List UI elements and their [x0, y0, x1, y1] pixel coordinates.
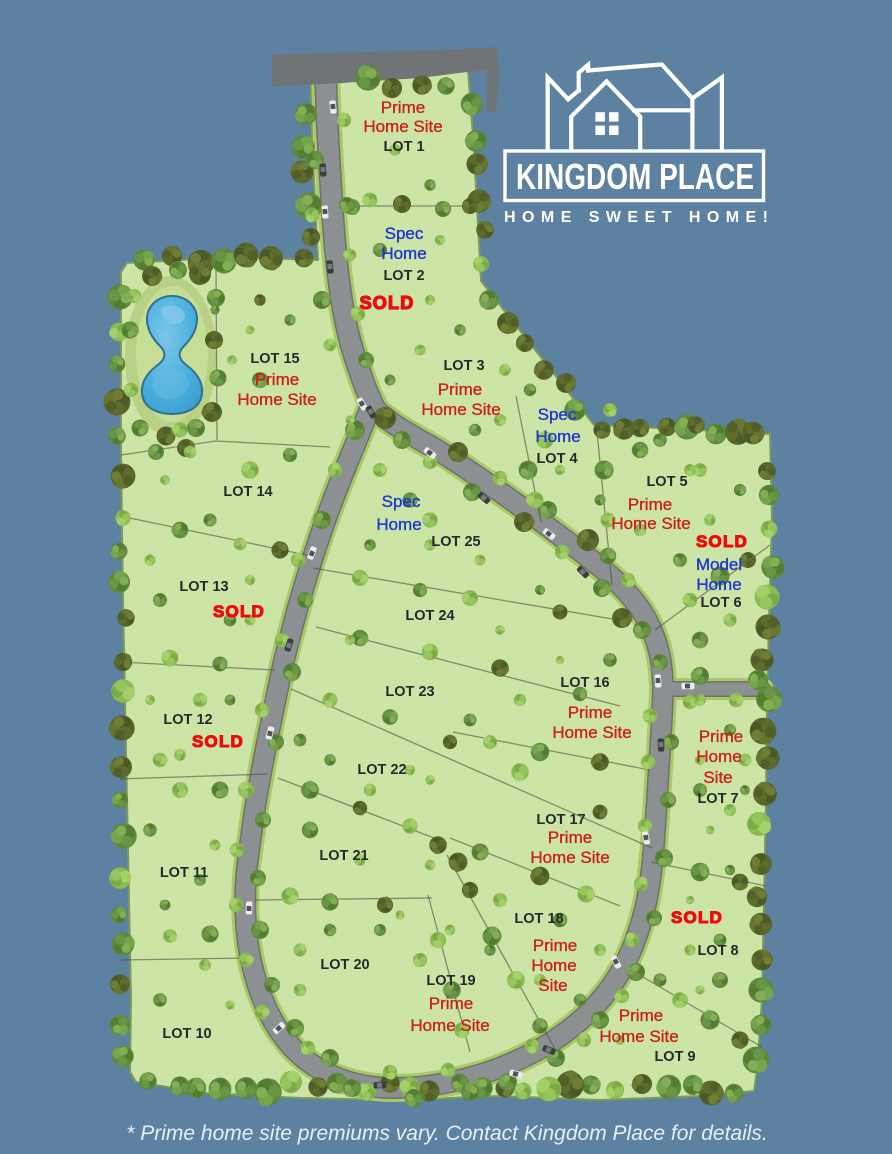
svg-text:Home Site: Home Site: [410, 1016, 489, 1035]
svg-text:Home Site: Home Site: [552, 723, 631, 742]
svg-text:LOT 15: LOT 15: [250, 351, 299, 367]
svg-text:LOT 12: LOT 12: [163, 712, 212, 728]
svg-text:LOT 22: LOT 22: [357, 762, 406, 778]
svg-text:SOLD: SOLD: [192, 732, 244, 751]
svg-text:LOT 11: LOT 11: [160, 865, 208, 881]
svg-text:Prime: Prime: [429, 994, 473, 1013]
svg-text:LOT 9: LOT 9: [654, 1049, 695, 1065]
svg-text:KINGDOM PLACE: KINGDOM PLACE: [516, 156, 754, 197]
svg-text:Prime: Prime: [255, 370, 299, 389]
svg-text:Prime: Prime: [548, 828, 592, 847]
svg-text:Home Site: Home Site: [530, 848, 609, 867]
svg-text:Site: Site: [538, 976, 567, 995]
svg-text:LOT 6: LOT 6: [700, 595, 741, 611]
svg-text:LOT 20: LOT 20: [320, 957, 369, 973]
svg-text:SOLD: SOLD: [696, 532, 748, 551]
svg-text:LOT 24: LOT 24: [405, 608, 454, 624]
svg-text:Home Site: Home Site: [237, 390, 316, 409]
svg-text:LOT 4: LOT 4: [536, 451, 577, 467]
svg-text:Home Site: Home Site: [421, 400, 500, 419]
svg-text:Prime: Prime: [619, 1006, 663, 1025]
svg-text:LOT 7: LOT 7: [697, 791, 738, 807]
svg-text:Prime: Prime: [381, 98, 425, 117]
svg-text:Site: Site: [703, 768, 732, 787]
svg-text:Prime: Prime: [568, 703, 612, 722]
svg-text:LOT 13: LOT 13: [179, 579, 228, 595]
svg-text:SOLD: SOLD: [671, 908, 723, 927]
svg-text:Home: Home: [696, 747, 741, 766]
svg-text:HOME SWEET HOME!: HOME SWEET HOME!: [504, 209, 768, 226]
svg-text:LOT 18: LOT 18: [514, 911, 563, 927]
svg-text:LOT 16: LOT 16: [560, 675, 609, 691]
svg-text:SOLD: SOLD: [213, 602, 265, 621]
svg-text:LOT 21: LOT 21: [319, 848, 368, 864]
svg-text:Home: Home: [381, 244, 426, 263]
svg-text:LOT 2: LOT 2: [383, 268, 424, 284]
svg-text:LOT 8: LOT 8: [697, 943, 738, 959]
svg-text:LOT 10: LOT 10: [162, 1026, 211, 1042]
svg-text:LOT 5: LOT 5: [646, 474, 687, 490]
svg-text:Home: Home: [696, 575, 741, 594]
svg-text:Prime: Prime: [628, 495, 672, 514]
svg-text:LOT 23: LOT 23: [385, 684, 434, 700]
svg-text:Home: Home: [531, 956, 576, 975]
svg-text:Home Site: Home Site: [611, 514, 690, 533]
svg-text:Spec: Spec: [538, 405, 577, 424]
svg-text:Home: Home: [535, 427, 580, 446]
svg-text:Home Site: Home Site: [363, 117, 442, 136]
svg-text:Spec: Spec: [385, 224, 424, 243]
svg-text:Prime: Prime: [699, 727, 743, 746]
svg-text:LOT 19: LOT 19: [426, 973, 475, 989]
svg-text:LOT 25: LOT 25: [431, 534, 480, 550]
svg-text:Model: Model: [696, 555, 742, 574]
svg-text:LOT 3: LOT 3: [443, 358, 484, 374]
svg-text:LOT 1: LOT 1: [383, 139, 424, 155]
svg-text:Prime: Prime: [438, 380, 482, 399]
svg-text:LOT 14: LOT 14: [223, 484, 272, 500]
svg-text:SOLD: SOLD: [360, 293, 415, 313]
svg-text:* Prime home site premiums var: * Prime home site premiums vary. Contact…: [126, 1122, 768, 1145]
svg-text:Spec: Spec: [382, 492, 421, 511]
svg-text:LOT 17: LOT 17: [536, 812, 585, 828]
svg-text:Home Site: Home Site: [599, 1027, 678, 1046]
svg-text:Prime: Prime: [533, 936, 577, 955]
svg-text:Home: Home: [376, 515, 421, 534]
